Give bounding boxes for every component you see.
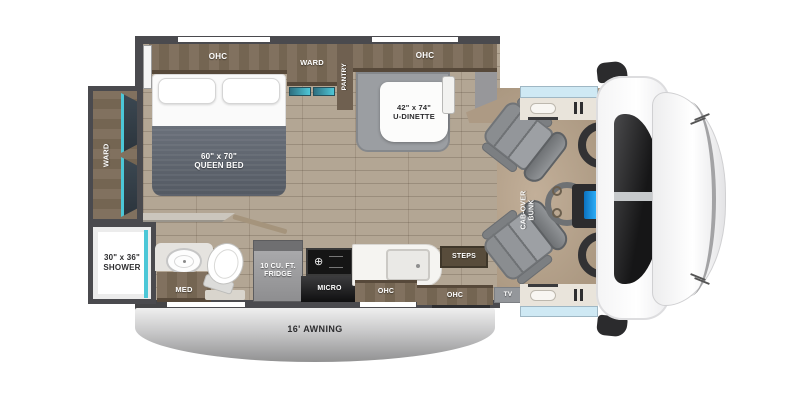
bedroom-ohc-label: OHC [209, 52, 227, 61]
pillow-left [158, 78, 216, 104]
bedroom-wardrobe-label: WARD [300, 59, 324, 68]
kitchen-ohc: OHC [355, 280, 417, 302]
dinette-table: 42" x 74" U-DINETTE [380, 82, 448, 142]
cabover-bunk-zone: CAB-OVER BUNK [510, 175, 546, 245]
window-top-2 [372, 37, 458, 42]
door-step-trim [528, 117, 558, 120]
micro-label: MICRO [317, 285, 341, 293]
window-bottom-2 [360, 302, 416, 307]
bed-name-label: QUEEN BED [194, 161, 243, 170]
cabover-label-line1: CAB-OVER [520, 191, 528, 230]
wardrobe-door-lower [121, 157, 137, 217]
fridge: 10 CU. FT. FRIDGE [253, 240, 303, 302]
pantry: PANTRY [337, 44, 353, 110]
cab-door-top [520, 98, 598, 120]
queen-bed-duvet: 60" x 70" QUEEN BED [152, 126, 286, 196]
awning-label: 16' AWNING [287, 324, 342, 335]
fridge-label-line1: 10 CU. FT. [260, 263, 295, 271]
bedroom-wardrobe: WARD [287, 44, 337, 86]
dinette-name-label: U-DINETTE [393, 112, 435, 121]
dinette-size-label: 42" x 74" [397, 103, 431, 112]
cooktop: ⊕ [306, 248, 353, 276]
cab-door-bottom [520, 284, 598, 306]
steps-label: STEPS [452, 253, 476, 261]
door-step-trim [528, 284, 558, 287]
wardrobe-drawer-left [289, 87, 311, 96]
dinette-ohc: OHC [353, 44, 497, 72]
window-top-1 [178, 37, 270, 42]
door-hinge-icon [574, 289, 577, 301]
vanity-sink [166, 248, 202, 274]
cab-door-window-bottom [520, 306, 598, 317]
entry-steps: STEPS [440, 246, 488, 268]
entry-ohc-label: OHC [447, 292, 463, 300]
microwave: MICRO [301, 276, 358, 302]
hood-accent-line [664, 102, 716, 296]
pantry-label: PANTRY [341, 63, 348, 90]
shower-name-label: SHOWER [103, 263, 140, 273]
tv: TV [494, 287, 522, 303]
pillow-right [222, 78, 280, 104]
grate-icon [329, 256, 343, 268]
door-pull [530, 103, 556, 114]
shower: 30" x 36" SHOWER [88, 222, 156, 304]
wardrobe-drawer-right [313, 87, 335, 96]
cupholder-icon [552, 186, 562, 196]
kitchen-sink [386, 249, 430, 281]
cupholder-icon [552, 208, 562, 218]
bedroom-ohc: OHC [149, 44, 287, 74]
rear-wardrobe-label: WARD [103, 143, 112, 167]
awning: 16' AWNING [135, 308, 495, 362]
entry-ohc: OHC [417, 285, 493, 305]
sink-drain [183, 260, 186, 263]
door-hinge-icon [580, 102, 583, 114]
bath-partition-wall [143, 213, 235, 222]
med-label: MED [175, 286, 192, 295]
dinette-ohc-label: OHC [416, 51, 434, 60]
kitchen-ohc-label: OHC [378, 288, 394, 296]
door-hinge-icon [580, 289, 583, 301]
bed-size-label: 60" x 70" [201, 152, 237, 161]
rear-wardrobe: WARD [88, 86, 142, 224]
faucet-icon [416, 264, 420, 268]
door-hinge-icon [574, 102, 577, 114]
cabover-label-line2: BUNK [528, 191, 536, 230]
toilet-seat-ring [210, 246, 242, 282]
shower-size-label: 30" x 36" [104, 253, 140, 263]
fridge-label-line2: FRIDGE [264, 271, 292, 279]
bedroom-slide-endcap [143, 45, 152, 89]
door-pull [530, 290, 556, 301]
cab-door-window-top [520, 86, 598, 98]
rv-floorplan-canvas: WARD 30" x 36" SHOWER OHC 60" x 70" QUEE… [0, 0, 800, 408]
tv-label: TV [504, 291, 513, 298]
burner-icon: ⊕ [314, 257, 323, 268]
dinette-slide-endcap [442, 76, 455, 114]
wardrobe-door-upper [121, 93, 137, 153]
